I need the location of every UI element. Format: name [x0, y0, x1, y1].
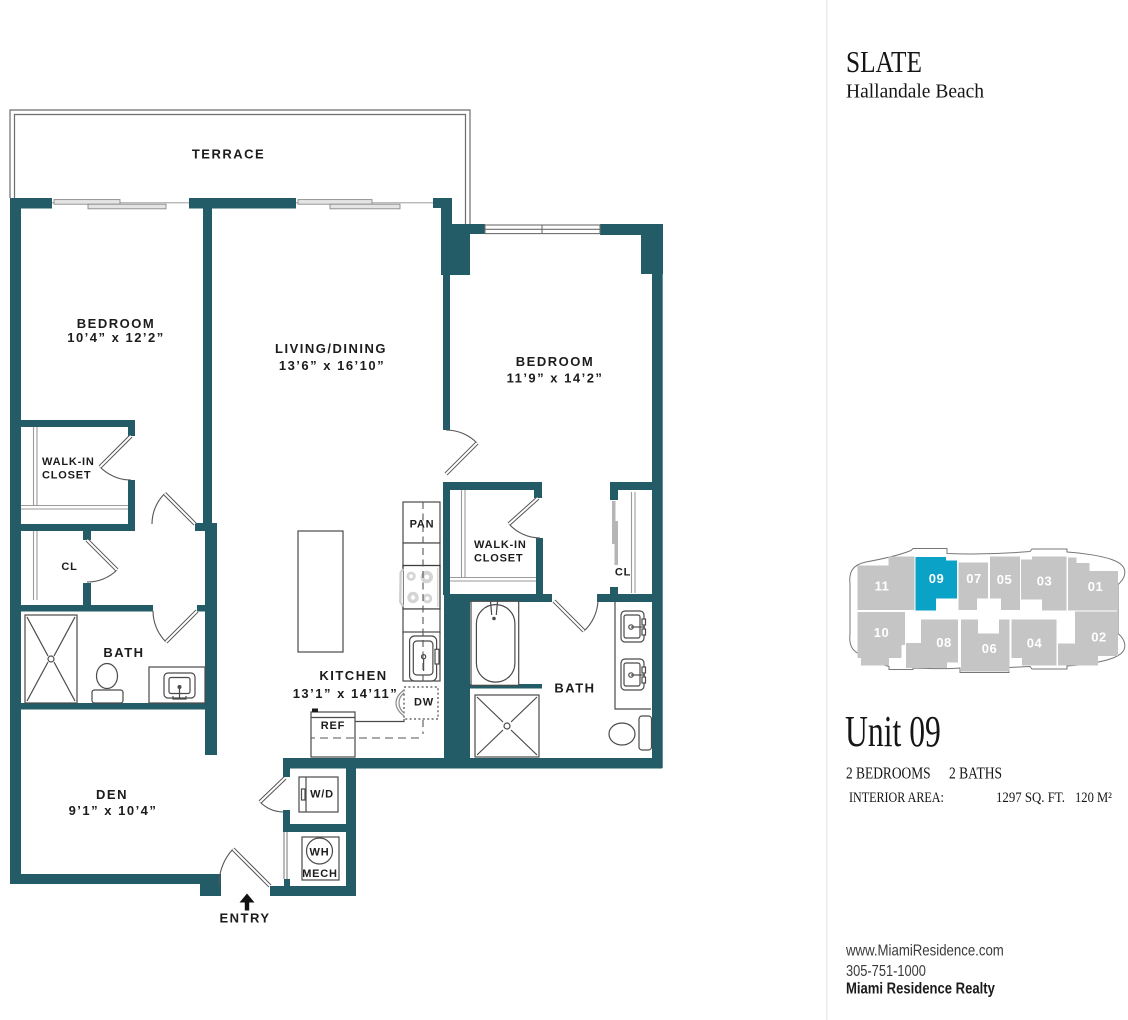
svg-text:INTERIOR AREA:: INTERIOR AREA: [849, 789, 944, 805]
svg-text:02: 02 [1091, 630, 1106, 645]
svg-text:09: 09 [929, 571, 944, 586]
svg-text:BATH: BATH [554, 681, 595, 696]
svg-text:BEDROOM: BEDROOM [77, 316, 155, 331]
svg-text:03: 03 [1037, 574, 1052, 589]
svg-text:WALK-IN: WALK-IN [474, 539, 527, 551]
svg-text:SLATE: SLATE [846, 46, 922, 80]
svg-text:CLOSET: CLOSET [474, 553, 523, 565]
svg-text:ENTRY: ENTRY [219, 911, 270, 926]
svg-text:11’9” x 14’2”: 11’9” x 14’2” [507, 371, 604, 386]
svg-text:07: 07 [966, 571, 981, 586]
svg-text:13’6” x 16’10”: 13’6” x 16’10” [279, 358, 385, 373]
svg-text:DEN: DEN [96, 787, 128, 802]
svg-text:305-751-1000: 305-751-1000 [846, 963, 926, 980]
svg-text:Hallandale Beach: Hallandale Beach [846, 82, 984, 103]
svg-text:WH: WH [310, 847, 330, 859]
svg-text:120 M²: 120 M² [1075, 789, 1112, 805]
svg-text:05: 05 [997, 572, 1012, 587]
svg-text:www.MiamiResidence.com: www.MiamiResidence.com [845, 943, 1004, 960]
svg-text:LIVING/DINING: LIVING/DINING [275, 341, 387, 356]
svg-text:08: 08 [936, 635, 951, 650]
svg-text:BATH: BATH [103, 645, 144, 660]
svg-text:13’1” x 14’11”: 13’1” x 14’11” [293, 686, 399, 701]
svg-text:9’1” x 10’4”: 9’1” x 10’4” [69, 803, 158, 818]
svg-text:1297 SQ. FT.: 1297 SQ. FT. [996, 789, 1065, 805]
svg-text:10: 10 [874, 625, 889, 640]
svg-text:WALK-IN: WALK-IN [42, 456, 95, 468]
svg-text:REF: REF [321, 720, 345, 732]
svg-text:PAN: PAN [410, 519, 435, 531]
svg-text:TERRACE: TERRACE [192, 147, 265, 162]
svg-text:06: 06 [982, 641, 997, 656]
svg-text:10’4” x 12’2”: 10’4” x 12’2” [67, 330, 165, 345]
svg-text:Miami Residence Realty: Miami Residence Realty [846, 981, 995, 998]
svg-text:01: 01 [1088, 579, 1103, 594]
svg-text:CL: CL [61, 561, 77, 573]
svg-text:CLOSET: CLOSET [42, 470, 91, 482]
svg-text:CL: CL [615, 567, 631, 579]
svg-text:DW: DW [414, 697, 434, 709]
svg-text:2 BEDROOMS: 2 BEDROOMS [846, 764, 931, 783]
svg-text:11: 11 [875, 579, 890, 594]
svg-text:04: 04 [1027, 636, 1043, 651]
svg-text:MECH: MECH [302, 868, 338, 880]
svg-text:KITCHEN: KITCHEN [319, 668, 387, 683]
svg-text:BEDROOM: BEDROOM [516, 354, 594, 369]
svg-text:W/D: W/D [310, 789, 334, 801]
svg-text:Unit 09: Unit 09 [845, 708, 941, 756]
svg-text:2 BATHS: 2 BATHS [949, 764, 1002, 783]
